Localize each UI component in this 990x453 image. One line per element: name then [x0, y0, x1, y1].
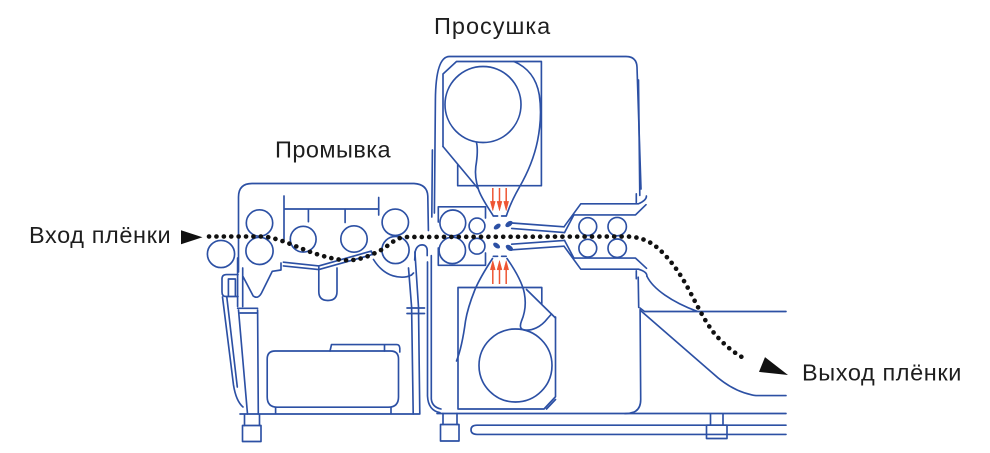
- svg-text:Выход плёнки: Выход плёнки: [802, 360, 962, 386]
- svg-text:Просушка: Просушка: [434, 13, 551, 39]
- svg-text:Вход плёнки: Вход плёнки: [29, 222, 171, 248]
- svg-text:Промывка: Промывка: [275, 137, 392, 163]
